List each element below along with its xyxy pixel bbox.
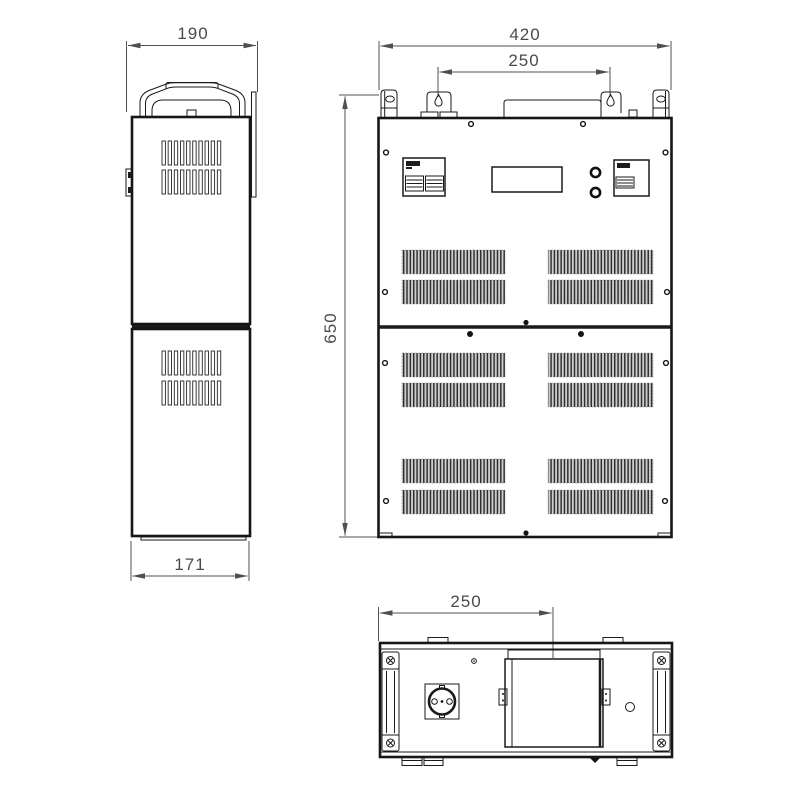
drain-notch <box>590 758 601 764</box>
mount-bracket-outer-right <box>653 90 669 117</box>
vent-grid <box>402 250 505 274</box>
vent-grid <box>402 490 505 514</box>
display-window <box>492 167 562 192</box>
vent-slot <box>193 381 196 405</box>
vent-slot <box>205 351 208 375</box>
socket-center-pin <box>441 700 444 703</box>
handle-outer-tube <box>140 83 245 116</box>
screw-cross <box>658 739 666 747</box>
vent-grid <box>548 383 653 407</box>
screw-dot <box>523 320 528 325</box>
vent-slot <box>162 351 165 375</box>
vent-slot <box>162 141 165 165</box>
screw-dot <box>578 331 584 337</box>
handle-lid-bulge <box>152 100 231 116</box>
bracket-foot <box>440 112 457 118</box>
dim-650-label: 650 <box>321 312 340 343</box>
side-rail-right <box>653 652 670 751</box>
bracket-outline <box>653 90 669 117</box>
socket-tab <box>440 686 445 689</box>
breaker-box-double <box>403 158 445 196</box>
small-tab <box>629 110 637 117</box>
vent-slot <box>180 170 183 194</box>
vent-slot <box>168 381 171 405</box>
vent-slot <box>174 381 177 405</box>
side-vent-grids <box>162 141 221 405</box>
vent-slot <box>205 141 208 165</box>
vent-slot <box>211 351 214 375</box>
side-rail-left <box>382 652 399 751</box>
vent-slot <box>199 170 202 194</box>
dim-171-label: 171 <box>174 555 205 574</box>
vent-slot <box>174 141 177 165</box>
terminal-cover-plate <box>499 650 610 747</box>
vent-slot <box>180 141 183 165</box>
dim-250-bottom: 250 <box>379 592 554 658</box>
handle-grip-pad <box>166 83 218 89</box>
screw-ring <box>383 361 388 366</box>
panel-button[interactable] <box>591 188 600 197</box>
rail-outline <box>382 652 399 751</box>
vent-slot <box>211 170 214 194</box>
brand-label-smudge <box>617 163 630 168</box>
vent-grid <box>548 280 653 304</box>
vent-slot <box>193 170 196 194</box>
vent-slot <box>217 170 220 194</box>
mount-bracket-keyhole-right <box>601 92 621 113</box>
vent-grid <box>548 459 653 483</box>
dim-650: 650 <box>321 95 379 537</box>
vent-grid <box>548 250 653 274</box>
screw-ring <box>664 361 669 366</box>
vent-slot <box>174 351 177 375</box>
screw-cross <box>387 657 395 665</box>
vent-slot <box>199 141 202 165</box>
bottom-body <box>380 643 672 757</box>
screw-ring <box>663 150 668 155</box>
vent-slot <box>187 351 190 375</box>
vent-slot <box>205 170 208 194</box>
dim-250-label: 250 <box>508 51 539 70</box>
vent-grid <box>402 383 505 407</box>
screw-ring <box>384 150 389 155</box>
vent-slot <box>162 170 165 194</box>
vent-slot <box>180 351 183 375</box>
side-lower-body <box>132 329 250 536</box>
bracket-outline <box>381 90 397 117</box>
vent-slot <box>187 381 190 405</box>
vent-grid <box>402 280 505 304</box>
vent-grid <box>548 353 653 377</box>
control-panel <box>403 158 649 197</box>
screw-ring <box>383 290 388 295</box>
vent-slot <box>168 141 171 165</box>
vent-slot <box>193 141 196 165</box>
screw-ring <box>469 122 474 127</box>
brand-label-smudge <box>406 167 412 169</box>
vent-slot <box>168 351 171 375</box>
vent-slot <box>193 351 196 375</box>
screw-small <box>472 659 477 664</box>
wall-mount-plate-edge <box>252 92 257 197</box>
vent-slot <box>205 381 208 405</box>
vent-slot <box>199 381 202 405</box>
bottom-view: 250 <box>379 592 673 766</box>
screw-cross <box>658 657 666 665</box>
dim-250-mounts: 250 <box>438 51 610 97</box>
vent-slot <box>162 381 165 405</box>
dim-190-label: 190 <box>177 24 208 43</box>
socket-pin-hole <box>432 699 438 705</box>
top-lid-profile <box>504 100 601 117</box>
side-view: 190 171 <box>126 24 258 581</box>
socket-pin-hole <box>447 699 453 705</box>
handle-inner-tube <box>146 87 240 116</box>
oval-hole <box>657 96 666 102</box>
carrying-handle-side <box>140 83 245 118</box>
breaker-box-single <box>614 160 649 196</box>
technical-drawing-canvas: 190 171 <box>0 0 800 800</box>
mount-bracket-outer-left <box>381 90 397 117</box>
vent-grid <box>548 490 653 514</box>
power-socket[interactable] <box>425 684 459 719</box>
cover-outline <box>505 659 603 747</box>
vent-slot <box>180 381 183 405</box>
screw-ring <box>384 499 389 504</box>
stabilizer-dimension-drawing: 190 171 <box>0 0 800 800</box>
socket-tab <box>440 715 445 718</box>
vent-grid <box>402 353 505 377</box>
front-vent-grids <box>402 250 653 514</box>
vent-slot <box>217 351 220 375</box>
mount-bracket-keyhole-left <box>421 92 457 118</box>
base-strip <box>141 537 246 540</box>
cable-gland-hole <box>626 703 635 712</box>
screw-dot <box>523 530 528 535</box>
screw-cross <box>387 739 395 747</box>
dim-420-label: 420 <box>509 25 540 44</box>
vent-slot <box>187 170 190 194</box>
side-upper-body <box>132 117 250 324</box>
vent-slot <box>211 141 214 165</box>
rail-outline <box>653 652 670 751</box>
oval-hole <box>386 96 395 102</box>
screw-ring <box>665 290 670 295</box>
dim-250-bottom-label: 250 <box>450 592 481 611</box>
brand-label-smudge <box>406 161 420 166</box>
vent-slot <box>168 170 171 194</box>
cover-top-lip <box>508 650 600 659</box>
vent-slot <box>187 141 190 165</box>
cover-clip <box>499 689 507 705</box>
front-view: 420 250 650 <box>321 25 672 538</box>
vent-slot <box>199 351 202 375</box>
vent-slot <box>174 170 177 194</box>
screw-ring <box>581 122 586 127</box>
vent-grid <box>402 459 505 483</box>
screw-ring <box>663 499 668 504</box>
dim-171: 171 <box>131 541 249 581</box>
vent-slot <box>211 381 214 405</box>
screw-dot <box>467 331 473 337</box>
bracket-foot <box>421 112 438 118</box>
vent-slot <box>217 381 220 405</box>
vent-slot <box>217 141 220 165</box>
panel-button[interactable] <box>591 168 600 177</box>
